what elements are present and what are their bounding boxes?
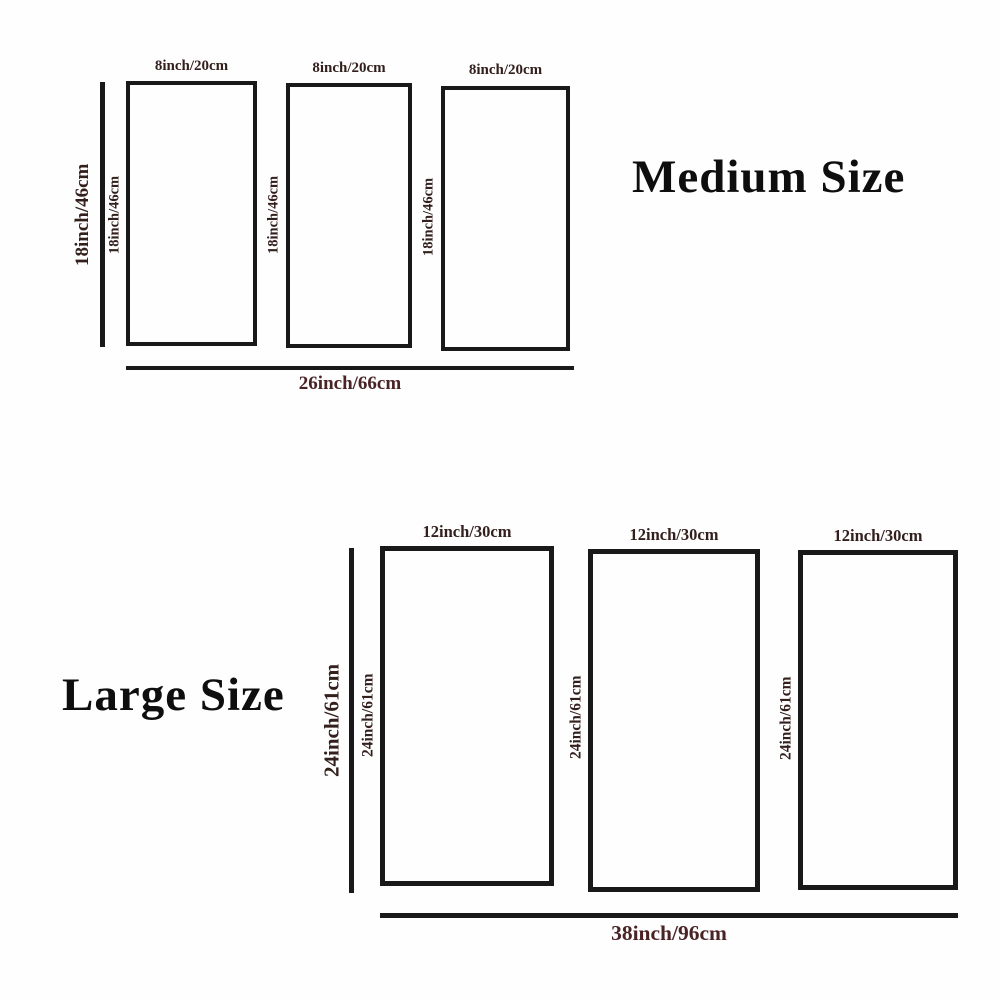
medium-section-title: Medium Size xyxy=(632,150,905,204)
large-panel-2 xyxy=(588,549,760,892)
large-panel-1 xyxy=(380,546,554,886)
large-overall-height-line xyxy=(349,548,354,893)
large-section-title: Large Size xyxy=(62,668,285,722)
large-panel-3-height-label: 24inch/61cm xyxy=(776,563,797,873)
medium-panel-1-width-label: 8inch/20cm xyxy=(126,58,257,75)
medium-panel-2-height-label: 18inch/46cm xyxy=(264,95,284,335)
medium-panel-1 xyxy=(126,81,257,346)
large-panel-1-height-label: 24inch/61cm xyxy=(358,560,379,870)
medium-overall-width-line xyxy=(126,366,574,370)
medium-overall-width-label: 26inch/66cm xyxy=(126,373,574,395)
large-overall-width-label: 38inch/96cm xyxy=(380,921,958,946)
medium-size-section: Medium Size 18inch/46cm 8inch/20cm 18inc… xyxy=(0,0,1000,440)
medium-panel-3-width-label: 8inch/20cm xyxy=(441,62,570,79)
medium-panel-3-height-label: 18inch/46cm xyxy=(419,97,439,337)
large-panel-2-height-label: 24inch/61cm xyxy=(566,562,587,872)
large-panel-2-width-label: 12inch/30cm xyxy=(588,525,760,545)
medium-panel-1-height-label: 18inch/46cm xyxy=(105,95,125,335)
large-panel-3-width-label: 12inch/30cm xyxy=(798,526,958,546)
medium-panel-2 xyxy=(286,83,412,348)
large-panel-3 xyxy=(798,550,958,890)
large-panel-1-width-label: 12inch/30cm xyxy=(380,522,554,542)
large-size-section: Large Size 24inch/61cm 12inch/30cm 24inc… xyxy=(0,440,1000,1000)
large-overall-height-label: 24inch/61cm xyxy=(316,548,348,893)
medium-panel-3 xyxy=(441,86,570,351)
medium-overall-height-label: 18inch/46cm xyxy=(68,82,98,347)
medium-panel-2-width-label: 8inch/20cm xyxy=(286,60,412,77)
large-overall-width-line xyxy=(380,913,958,918)
